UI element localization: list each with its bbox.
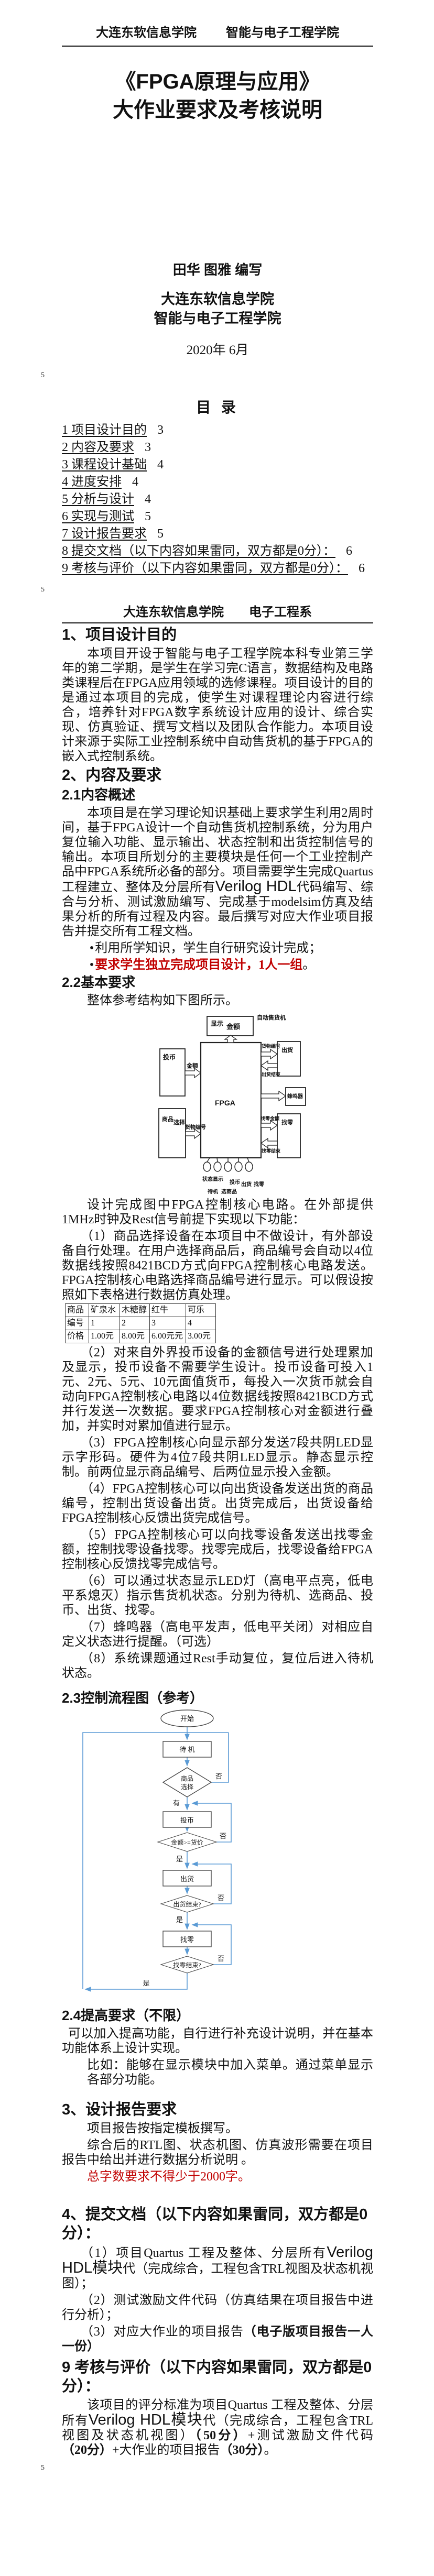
coin-pin [224, 1162, 232, 1171]
toc-page-9: 6 [359, 562, 365, 575]
toc-item: 2 内容及要求3 [62, 439, 373, 456]
ship-done-label: 出货结束 [262, 1071, 281, 1077]
section-3-heading: 3、设计报告要求 [62, 2100, 373, 2119]
coin-label: 投币 [163, 1053, 176, 1061]
flow-no-label: 否 [218, 1955, 224, 1963]
toc-item: 7 设计报告要求5 [62, 525, 373, 543]
section-2-4-heading: 2.4提高要求（不限） [62, 2007, 373, 2024]
goods-price-table: 商品 矿泉水 木糖醇 红牛 可乐 编号 1 2 3 4 价格 1.00元 8.0… [65, 1303, 216, 1343]
table-row: 商品 矿泉水 木糖醇 红牛 可乐 [66, 1304, 216, 1317]
flow-coin-label: 投币 [180, 1816, 194, 1824]
section-2-heading: 2、内容及要求 [62, 766, 373, 785]
display-label: 显示 [211, 1020, 223, 1027]
organization-line1: 大连东软信息学院 [62, 290, 373, 309]
table-cell: 可乐 [186, 1304, 216, 1317]
header-rule [62, 46, 373, 47]
change-label: 找零 [281, 1119, 294, 1126]
vending-machine-block-diagram: 自动售货机 显示 金额 FPGA 投币 金额 商品 选择 货物编号 货物编号 出… [78, 1011, 324, 1196]
flow-select-label2: 选择 [181, 1783, 193, 1791]
page2-header-rule [62, 622, 373, 623]
toc-title: 目 录 [62, 399, 373, 416]
bullet-item-1: •利用所学知识，学生自行研究设计完成； [90, 941, 373, 956]
table-cell: 3 [150, 1317, 186, 1330]
toc-link-5[interactable]: 5 分析与设计 [62, 492, 134, 506]
section-3-paragraph1: 项目报告按指定模板撰写。 [62, 2121, 373, 2136]
table-cell: 2 [120, 1317, 150, 1330]
change-done-label: 找零结束 [262, 1148, 281, 1154]
pin-status-label: 状态显示 [202, 1176, 223, 1182]
deliverable-2: （2）测试激励文件代码（仿真结果在项目报告中进行分析）； [62, 2293, 373, 2322]
toc-link-1[interactable]: 1 项目设计目的 [62, 423, 147, 437]
toc-page-5: 4 [145, 492, 151, 506]
requirement-5-paragraph: （5）FPGA控制核心可以向找零设备发送出找零金额，控制找零设备找零。找零完成后… [62, 1528, 373, 1572]
table-cell: 1.00元 [89, 1330, 120, 1343]
bullet-text: 利用所学知识，学生自行研究设计完成； [95, 941, 321, 955]
page-number: 5 [41, 2464, 373, 2472]
bullet-text-tail: 。 [302, 958, 315, 972]
section-1-paragraph: 本项目开设于智能与电子工程学院本科专业第三学年的第二学期，是学生在学习完C语言，… [62, 646, 373, 764]
score-30-label: （30分） [220, 2443, 264, 2457]
toc-link-2[interactable]: 2 内容及要求 [62, 441, 134, 454]
text-segment: （1）项目Quartus 工程及整体、分层所有 [81, 2246, 327, 2260]
flow-has-label: 有 [173, 1799, 180, 1807]
flow-yes-label: 是 [143, 1979, 149, 1987]
toc-page-1: 3 [157, 423, 164, 437]
flow-select-label1: 商品 [181, 1774, 193, 1782]
arrow-change-done [261, 1138, 277, 1148]
doc-title: 《FPGA原理与应用》 大作业要求及考核说明 [62, 68, 373, 124]
section-2-2-intro: 整体参考结构如下图所示。 [62, 993, 373, 1008]
toc-item: 8 提交文档（以下内容如果雷同，双方都是0分）：6 [62, 543, 373, 560]
section-2-1-paragraph: 本项目是在学习理论知识基础上要求学生利用2周时间，基于FPGA设计一个自动售货机… [62, 806, 373, 939]
bullet-icon: • [90, 941, 94, 955]
table-cell: 价格 [66, 1330, 89, 1343]
flow-no-label: 否 [215, 1772, 222, 1780]
word-count-requirement: 总字数要求不得少于2000字。 [62, 2169, 373, 2184]
amount-signal-label: 金额 [186, 1062, 198, 1069]
header-school-name: 大连东软信息学院 [96, 24, 197, 41]
toc-link-7[interactable]: 7 设计报告要求 [62, 527, 147, 541]
cover-date: 2020年 6月 [62, 342, 373, 359]
organization-line2: 智能与电子工程学院 [62, 309, 373, 328]
score-20-label: （20分） [62, 2443, 112, 2457]
goods-number-label: 货物编号 [185, 1124, 206, 1131]
arrow-ship-done [261, 1061, 277, 1070]
pin-change-label: 找零 [254, 1181, 265, 1188]
arrow-coin-amount [185, 1068, 201, 1078]
page1-header: 大连东软信息学院 智能与电子工程学院 [62, 0, 373, 41]
requirement-2-paragraph: （2）对来自外界投币设备的金额信号进行处理累加及显示，投币设备不需要学生设计。投… [62, 1345, 373, 1433]
text-segment: 。 [264, 2443, 277, 2457]
deliverable-3: （3）对应大作业的项目报告（电子版项目报告一人一份） [62, 2325, 373, 2354]
ship-label: 出货 [281, 1046, 293, 1054]
page-number: 5 [41, 586, 373, 594]
goods-label: 商品 [162, 1115, 173, 1123]
flow-no-label: 否 [220, 1832, 226, 1840]
page-number: 5 [41, 371, 373, 380]
bullet-item-2: •要求学生独立完成项目设计，1人一组。 [90, 958, 373, 972]
arrow-to-display [225, 1035, 236, 1043]
flow-no-label: 否 [218, 1894, 224, 1902]
buzzer-label: 蜂鸣器 [287, 1093, 303, 1100]
organization: 大连东软信息学院 智能与电子工程学院 [62, 290, 373, 328]
table-row: 价格 1.00元 8.00元 6.00元元 3.00元 [66, 1330, 216, 1343]
section-4-heading: 4、提交文档（以下内容如果雷同，双方都是0分）： [62, 2205, 373, 2243]
page2-header-school: 大连东软信息学院 [123, 605, 224, 620]
doc-title-line2: 大作业要求及考核说明 [62, 96, 373, 124]
ship-box [277, 1042, 300, 1076]
flow-select-decision [163, 1768, 211, 1797]
status-pin [203, 1162, 211, 1171]
flow-start-label: 开始 [180, 1715, 194, 1723]
doc-title-line1: 《FPGA原理与应用》 [62, 68, 373, 96]
flow-amount-label: 金额>=货价 [171, 1838, 203, 1846]
table-cell: 编号 [66, 1317, 89, 1330]
flow-ship-label: 出货 [180, 1875, 194, 1883]
requirement-8-paragraph: （8）系统课题通过Rest手动复位，复位后进入待机状态。 [62, 1651, 373, 1681]
table-cell: 6.00元元 [150, 1330, 186, 1343]
table-row: 编号 1 2 3 4 [66, 1317, 216, 1330]
status-pin [214, 1162, 221, 1171]
toc-link-3[interactable]: 3 课程设计基础 [62, 458, 147, 472]
header-college-name: 智能与电子工程学院 [226, 24, 339, 41]
table-cell: 1 [89, 1317, 120, 1330]
toc-link-4[interactable]: 4 进度安排 [62, 475, 122, 489]
document-page: 大连东软信息学院 智能与电子工程学院 《FPGA原理与应用》 大作业要求及考核说… [0, 0, 434, 2576]
text-segment: +测试激励文件代码 [248, 2429, 373, 2442]
toc-item: 6 实现与测试5 [62, 508, 373, 525]
score-50-label: （50分） [195, 2429, 248, 2442]
pin-pick-label: 选商品 [221, 1188, 237, 1195]
section-2-2-heading: 2.2基本要求 [62, 973, 373, 991]
change-amount-label: 找零金额 [261, 1115, 279, 1121]
deliverable-1: （1）项目Quartus 工程及整体、分层所有Verilog HDL模块代（完成… [62, 2245, 373, 2291]
toc-item: 1 项目设计目的3 [62, 422, 373, 439]
toc-item: 3 课程设计基础4 [62, 456, 373, 474]
authors-line: 田华 图雅 编写 [62, 260, 373, 279]
section-2-1-heading: 2.1内容概述 [62, 786, 373, 804]
section-2-4-paragraph1: 可以加入提高功能，自行进行补充设计说明，并在基本功能体系上设计实现。 [62, 2026, 373, 2056]
table-cell: 4 [186, 1317, 216, 1330]
toc-page-2: 3 [145, 441, 151, 454]
bullet-text-highlight: 要求学生独立完成项目设计，1人一组 [95, 958, 302, 972]
toc-link-6[interactable]: 6 实现与测试 [62, 510, 134, 523]
fpga-label: FPGA [215, 1099, 235, 1107]
table-cell: 矿泉水 [89, 1304, 120, 1317]
requirement-1-paragraph: （1）商品选择设备在本项目中不做设计，有外部设备自行处理。在用户选择商品后，商品… [62, 1229, 373, 1302]
control-flowchart: 开始 待 机 商品 选择 否 有 投币 金额>=货价 否 是 出货 出货结束? … [80, 1709, 261, 1998]
toc-item: 5 分析与设计4 [62, 491, 373, 508]
toc-page-3: 4 [157, 458, 164, 472]
flow-ship-done-label: 出货结束? [173, 1900, 201, 1908]
arrow-ship-number [261, 1049, 277, 1059]
toc-page-7: 5 [157, 527, 164, 541]
ship-pin [235, 1162, 242, 1171]
section-1-heading: 1、项目设计目的 [62, 626, 373, 644]
flow-change-done-label: 找零结束? [173, 1961, 201, 1969]
page2-header-dept: 电子工程系 [249, 605, 312, 620]
section-9-heading: 9 考核与评价（以下内容如果雷同，双方都是0分）： [62, 2358, 373, 2396]
change-pin [245, 1162, 253, 1171]
section-2-3-heading: 2.3控制流程图（参考） [62, 1689, 373, 1707]
table-cell: 8.00元 [120, 1330, 150, 1343]
requirement-7-paragraph: （7）蜂鸣器（高电平发声，低电平关闭）对相应自定义状态进行提醒。（可选） [62, 1620, 373, 1649]
goods-select-label: 选择 [173, 1119, 186, 1126]
section-2-4-paragraph2: 比如：能够在显示模块中加入菜单。通过菜单显示各部分功能。 [87, 2058, 373, 2087]
design-intro-paragraph: 设计完成图中FPGA控制核心电路。在外部提供1MHz时钟及Rest信号前提下实现… [62, 1198, 373, 1227]
page2-header: 大连东软信息学院 电子工程系 [62, 605, 373, 620]
toc-item: 9 考核与评价（以下内容如果雷同，双方都是0分）：6 [62, 560, 373, 577]
toc-page-8: 6 [346, 544, 352, 558]
system-label: 自动售货机 [257, 1014, 286, 1021]
requirement-4-paragraph: （4）FPGA控制核心可以向出货设备发送出货的商品编号，控制出货设备出货。出货完… [62, 1482, 373, 1526]
text-segment: （3）对应大作业的项目报告 [81, 2325, 244, 2339]
toc-link-9[interactable]: 9 考核与评价（以下内容如果雷同，双方都是0分）： [62, 562, 348, 575]
bullet-icon: • [90, 958, 94, 972]
toc-item: 4 进度安排4 [62, 474, 373, 491]
flow-change-label: 找零 [180, 1936, 194, 1944]
display-amount-label: 金额 [226, 1023, 240, 1031]
pin-ship-label: 出货 [241, 1181, 252, 1188]
verilog-hdl-text: Verilog HDL模块 [89, 2411, 203, 2428]
grading-paragraph: 该项目的评分标准为项目Quartus 工程及整体、分层所有Verilog HDL… [62, 2398, 373, 2458]
flow-yes-label: 是 [176, 1855, 183, 1863]
arrow-change-amount [261, 1121, 277, 1130]
table-cell: 木糖醇 [120, 1304, 150, 1317]
arrow-buzzer [261, 1091, 286, 1101]
ship-number-label: 货物编号 [262, 1043, 280, 1049]
text-segment: +大作业的项目报告 [112, 2443, 220, 2457]
requirement-6-paragraph: （6）可以通过状态显示LED灯（高电平点亮，低电平系熄灭）指示售货机状态。分别为… [62, 1574, 373, 1618]
requirement-3-paragraph: （3）FPGA控制核心向显示部分发送7段共阴LED显示字形码。硬件为4位7段共阴… [62, 1435, 373, 1479]
toc-page-6: 5 [145, 510, 151, 523]
toc-page-4: 4 [132, 475, 138, 489]
table-cell: 红牛 [150, 1304, 186, 1317]
pin-coin-label: 投币 [230, 1179, 240, 1186]
flow-standby-label: 待 机 [179, 1746, 194, 1753]
section-3-paragraph2: 综合后的RTL图、状态机图、仿真波形需要在项目报告中给出并进行数据分析说明 。 [62, 2138, 373, 2167]
verilog-hdl-text: Verilog HDL [215, 878, 297, 895]
table-cell: 商品 [66, 1304, 89, 1317]
table-of-contents: 1 项目设计目的3 2 内容及要求3 3 课程设计基础4 4 进度安排4 5 分… [62, 422, 373, 577]
table-cell: 3.00元 [186, 1330, 216, 1343]
pin-standby-label: 待机 [208, 1188, 218, 1195]
flow-yes-label: 是 [176, 1916, 183, 1924]
toc-link-8[interactable]: 8 提交文档（以下内容如果雷同，双方都是0分）： [62, 544, 335, 558]
